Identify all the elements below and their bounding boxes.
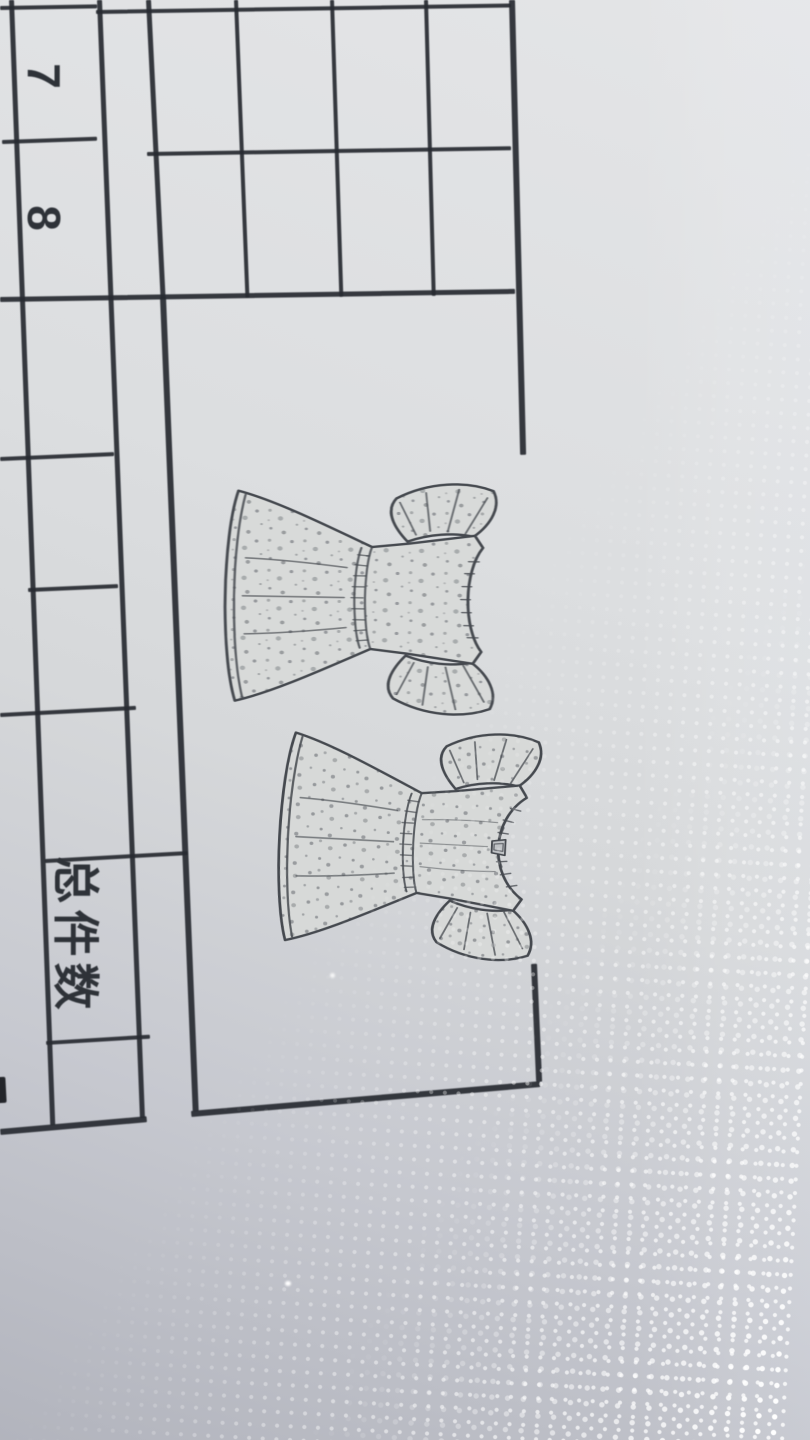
size-label-8: 8 (14, 188, 74, 248)
sleeve-left (391, 483, 497, 543)
light-reflection (330, 973, 335, 978)
grid-rule-h (96, 3, 511, 14)
table-rule-h (0, 4, 97, 10)
table-rule-h (0, 289, 515, 302)
table-rule-h (0, 706, 136, 717)
grid-rule-v (234, 0, 249, 298)
dress-front-view-sketch (243, 687, 594, 998)
grid-rule-v (146, 0, 166, 300)
sleeve-right (431, 900, 533, 962)
grid-rule-h (147, 146, 511, 156)
table-rule-h (0, 452, 114, 461)
table-rule-h (28, 584, 118, 592)
sketch-box-bottom-border (191, 1081, 540, 1117)
total-pieces-label: 总件数 (48, 831, 112, 1041)
light-reflection (285, 1281, 291, 1286)
sketch-box-right-border-upper (509, 0, 526, 455)
table-rule-h (0, 1116, 147, 1135)
photographed-spec-sheet: 7 8 总件数 (0, 0, 810, 1440)
size-label-7: 7 (14, 46, 74, 106)
